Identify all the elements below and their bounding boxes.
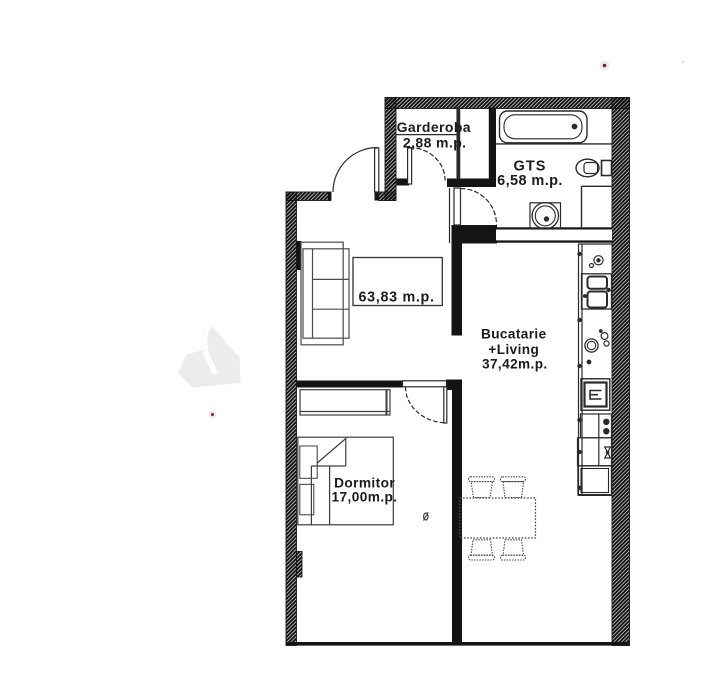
- svg-text:17,00m.p.: 17,00m.p.: [332, 490, 398, 505]
- svg-text:Bucatarie: Bucatarie: [481, 326, 547, 341]
- svg-text:Garderoba: Garderoba: [397, 119, 471, 135]
- svg-text:+Living: +Living: [488, 342, 539, 357]
- svg-text:63,83 m.p.: 63,83 m.p.: [359, 289, 435, 305]
- svg-text:37,42m.p.: 37,42m.p.: [482, 356, 548, 371]
- svg-text:6,58 m.p.: 6,58 m.p.: [497, 173, 563, 189]
- svg-text:2,88 m.p.: 2,88 m.p.: [403, 134, 467, 150]
- svg-text:GTS: GTS: [513, 159, 546, 175]
- svg-text:Dormitor: Dormitor: [334, 475, 395, 490]
